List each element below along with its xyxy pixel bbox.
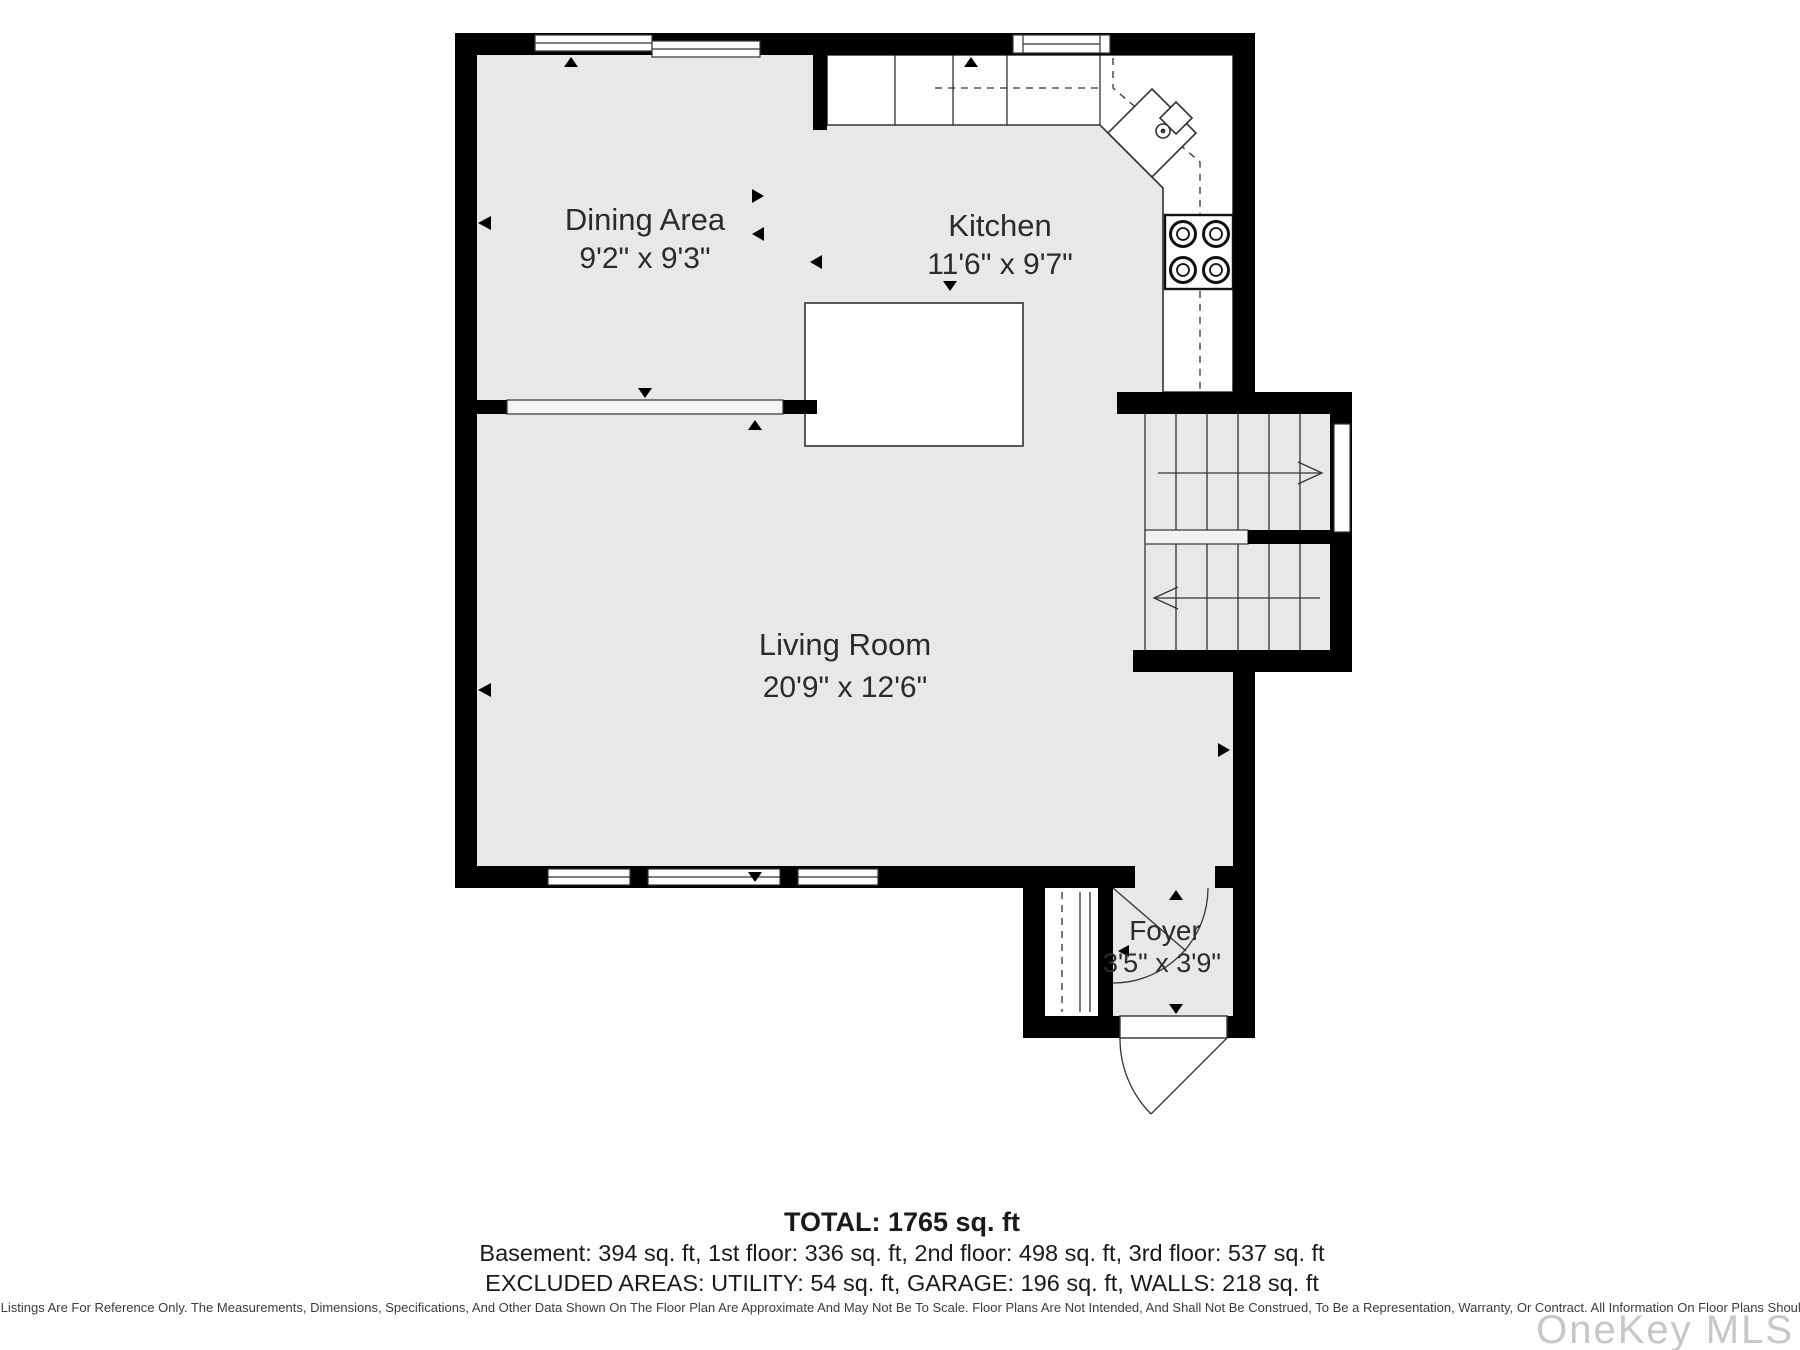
excluded-areas-text: EXCLUDED AREAS: UTILITY: 54 sq. ft, GARA… [485, 1270, 1319, 1296]
main-floor [477, 55, 1233, 866]
living-room-label: Living Room [759, 627, 931, 662]
foyer-opening [1135, 866, 1215, 888]
dining-area-dims: 9'2" x 9'3" [579, 242, 710, 275]
living-room-dims: 20'9" x 12'6" [763, 671, 928, 704]
stairs-top-wall [1117, 392, 1352, 414]
watermark-logo: OneKey MLS [1536, 1308, 1794, 1350]
living-east-wall [1233, 672, 1255, 866]
living-window-3 [798, 869, 878, 885]
front-entry-door-icon [1120, 1016, 1227, 1114]
dining-area-label: Dining Area [565, 202, 726, 237]
stair-landing-wall [1248, 530, 1330, 544]
dining-window-1 [535, 35, 652, 51]
disclaimer-text: Floor Plans Provided In Our Listings Are… [0, 1300, 1800, 1315]
foyer-south-wall-left [1023, 1016, 1120, 1038]
kitchen-window [1013, 35, 1110, 53]
left-wall [455, 33, 477, 888]
foyer-dims: 3'5" x 3'9" [1103, 948, 1221, 978]
kitchen-dining-stub [813, 55, 827, 130]
divider-stub-left [477, 400, 507, 414]
total-area-text: TOTAL: 1765 sq. ft [784, 1207, 1020, 1237]
divider-stub-right [783, 400, 817, 414]
closet-west-wall [1023, 888, 1045, 1038]
kitchen-island [805, 303, 1023, 446]
area-summary: TOTAL: 1765 sq. ft Basement: 394 sq. ft,… [479, 1207, 1325, 1296]
dining-window-2 [652, 41, 760, 57]
foyer-south-wall-right [1227, 1016, 1255, 1038]
living-window-1 [548, 869, 630, 885]
cased-opening [507, 400, 783, 414]
stove-icon [1165, 215, 1233, 289]
kitchen-dims: 11'6" x 9'7" [927, 248, 1073, 281]
living-window-2 [648, 869, 780, 885]
floor-plan-canvas: Dining Area 9'2" x 9'3" Kitchen 11'6" x … [0, 0, 1800, 1350]
stairs-bottom-wall [1133, 650, 1352, 672]
kitchen-label: Kitchen [948, 208, 1051, 243]
kitchen-east-wall [1233, 33, 1255, 414]
floor-areas-text: Basement: 394 sq. ft, 1st floor: 336 sq.… [479, 1240, 1325, 1266]
foyer-east-wall [1233, 888, 1255, 1038]
stair-landing [1145, 530, 1248, 544]
floor-plan-page: Dining Area 9'2" x 9'3" Kitchen 11'6" x … [0, 0, 1800, 1350]
stair-window [1334, 424, 1350, 532]
foyer-label: Foyer [1129, 915, 1201, 946]
